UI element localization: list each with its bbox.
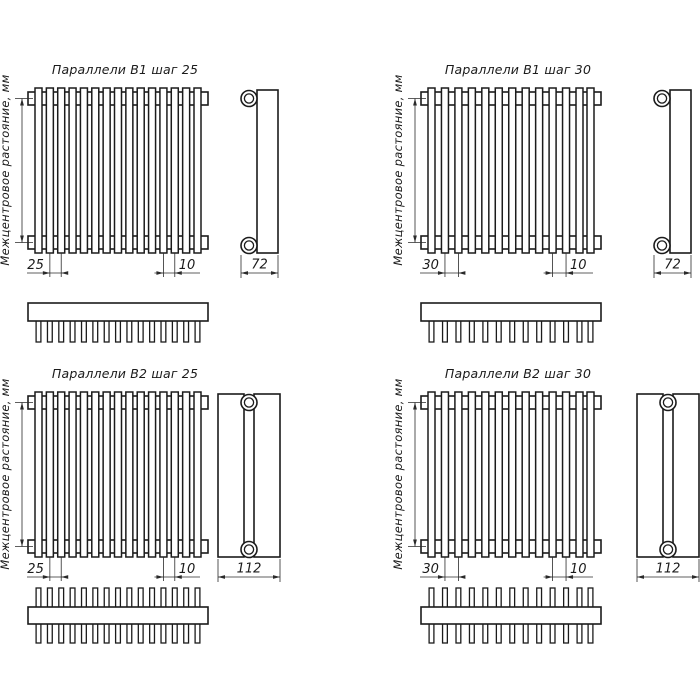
top-view — [28, 588, 208, 643]
comb-tooth-top — [184, 588, 189, 608]
tube — [183, 88, 190, 253]
side-body — [257, 90, 278, 253]
dim-arrow — [20, 99, 24, 106]
comb-tooth-bottom — [47, 623, 52, 643]
step-dimensions: 3010 — [420, 557, 593, 581]
tube — [587, 88, 594, 253]
radiator-technical-drawing: Параллели B1 шаг 25Межцентровое растояни… — [0, 0, 700, 700]
tube — [171, 88, 178, 253]
comb-tooth — [564, 320, 569, 342]
depth-dimension: 112 — [218, 559, 280, 582]
comb-tooth-bottom — [82, 623, 87, 643]
tube — [455, 392, 462, 557]
depth-dimension-label: 72 — [251, 258, 268, 273]
connection-port-inner — [244, 545, 253, 554]
tube — [549, 392, 556, 557]
end-gap-dimension-label: 10 — [179, 562, 196, 577]
comb-tooth-bottom — [564, 623, 569, 643]
tube — [522, 392, 529, 557]
comb-tooth — [82, 320, 87, 342]
comb-tooth — [116, 320, 121, 342]
dim-arrow — [273, 575, 280, 579]
comb-tooth — [483, 320, 488, 342]
tube — [509, 88, 516, 253]
tube — [103, 88, 110, 253]
comb-tooth-bottom — [150, 623, 155, 643]
dim-arrow — [546, 575, 553, 579]
tube — [35, 88, 42, 253]
tube — [171, 392, 178, 557]
comb-tooth — [550, 320, 555, 342]
comb-tooth-bottom — [93, 623, 98, 643]
comb-bar — [28, 607, 208, 624]
center-distance-label: Межцентровое растояние, мм — [0, 378, 12, 569]
dim-arrow — [20, 540, 24, 547]
tube — [80, 392, 87, 557]
comb-tooth-top — [469, 588, 474, 608]
comb-tooth-top — [195, 588, 200, 608]
side-body — [670, 90, 691, 253]
comb-tooth — [588, 320, 593, 342]
depth-dimension: 112 — [637, 559, 699, 582]
variant-b2-step30: Параллели B2 шаг 30Межцентровое растояни… — [391, 366, 699, 643]
comb-tooth — [47, 320, 52, 342]
variant-title: Параллели B1 шаг 25 — [52, 62, 198, 77]
comb-tooth-top — [127, 588, 132, 608]
dim-arrow — [241, 271, 248, 275]
tube — [468, 88, 475, 253]
tube — [35, 392, 42, 557]
tube — [58, 88, 65, 253]
depth-dimension: 72 — [654, 255, 691, 278]
end-gap-dimension-label: 10 — [179, 258, 196, 273]
connection-port-inner — [244, 398, 253, 407]
connection-port-inner — [663, 545, 672, 554]
comb-tooth-top — [483, 588, 488, 608]
tube — [149, 88, 156, 253]
comb-bar — [421, 303, 601, 321]
side-body-back — [673, 394, 699, 557]
comb-tooth — [172, 320, 177, 342]
comb-tooth-bottom — [469, 623, 474, 643]
comb-tooth-top — [82, 588, 87, 608]
tube — [495, 392, 502, 557]
comb-tooth-bottom — [138, 623, 143, 643]
tube — [522, 88, 529, 253]
front-view — [421, 392, 601, 557]
variant-b1-step30: Параллели B1 шаг 30Межцентровое растояни… — [391, 62, 691, 342]
dim-arrow — [413, 403, 417, 410]
comb-tooth-bottom — [116, 623, 121, 643]
dim-arrow — [458, 575, 465, 579]
variant-title: Параллели B2 шаг 30 — [445, 366, 591, 381]
tube — [468, 392, 475, 557]
dim-arrow — [438, 271, 445, 275]
comb-tooth — [70, 320, 75, 342]
comb-tooth-top — [510, 588, 515, 608]
dim-arrow — [20, 403, 24, 410]
dim-arrow — [458, 271, 465, 275]
tube — [563, 392, 570, 557]
connection-port-inner — [663, 398, 672, 407]
comb-tooth-bottom — [588, 623, 593, 643]
dim-arrow — [684, 271, 691, 275]
step-dimensions: 2510 — [27, 253, 200, 277]
dim-arrow — [413, 99, 417, 106]
dim-arrow — [43, 271, 50, 275]
comb-tooth-top — [443, 588, 448, 608]
comb-tooth — [523, 320, 528, 342]
tube — [115, 392, 122, 557]
tube — [563, 88, 570, 253]
front-view — [28, 392, 208, 557]
comb-tooth-bottom — [456, 623, 461, 643]
comb-tooth-top — [116, 588, 121, 608]
comb-tooth-bottom — [127, 623, 132, 643]
comb-tooth-top — [577, 588, 582, 608]
comb-tooth-bottom — [161, 623, 166, 643]
comb-tooth-bottom — [550, 623, 555, 643]
drawing-canvas: Параллели B1 шаг 25Межцентровое растояни… — [0, 0, 700, 700]
dim-arrow — [156, 575, 163, 579]
comb-tooth-top — [93, 588, 98, 608]
comb-tooth-top — [172, 588, 177, 608]
dim-arrow — [413, 236, 417, 243]
comb-tooth — [469, 320, 474, 342]
step-dimension-label: 25 — [27, 258, 44, 273]
comb-tooth — [195, 320, 200, 342]
side-view — [654, 90, 691, 254]
comb-tooth-top — [59, 588, 64, 608]
variant-b2-step25: Параллели B2 шаг 25Межцентровое растояни… — [0, 366, 280, 643]
tube — [441, 88, 448, 253]
tube — [183, 392, 190, 557]
comb-tooth-top — [161, 588, 166, 608]
comb-tooth — [456, 320, 461, 342]
tube — [69, 88, 76, 253]
connection-port-inner — [657, 94, 666, 103]
tube — [58, 392, 65, 557]
tube — [194, 392, 201, 557]
tube — [46, 392, 53, 557]
tube — [549, 88, 556, 253]
step-dimension-label: 25 — [27, 562, 44, 577]
comb-tooth-bottom — [36, 623, 41, 643]
tube — [428, 88, 435, 253]
dim-arrow — [156, 271, 163, 275]
comb-tooth-top — [537, 588, 542, 608]
front-view — [421, 88, 601, 253]
tube — [536, 88, 543, 253]
tube — [194, 88, 201, 253]
comb-tooth-bottom — [184, 623, 189, 643]
dim-arrow — [43, 575, 50, 579]
tube — [441, 392, 448, 557]
comb-tooth-top — [429, 588, 434, 608]
side-view — [637, 394, 699, 558]
dim-arrow — [20, 236, 24, 243]
tube — [46, 88, 53, 253]
comb-tooth-top — [550, 588, 555, 608]
step-dimension-label: 30 — [422, 258, 439, 273]
comb-tooth-top — [588, 588, 593, 608]
variant-title: Параллели B2 шаг 25 — [52, 366, 198, 381]
center-distance-label: Межцентровое растояние, мм — [391, 378, 405, 569]
comb-tooth-bottom — [429, 623, 434, 643]
dim-arrow — [654, 271, 661, 275]
comb-tooth — [496, 320, 501, 342]
comb-tooth-bottom — [70, 623, 75, 643]
comb-tooth — [93, 320, 98, 342]
tube — [115, 88, 122, 253]
tube — [103, 392, 110, 557]
comb-tooth-bottom — [483, 623, 488, 643]
depth-dimension-label: 72 — [664, 258, 681, 273]
step-dimension-label: 30 — [422, 562, 439, 577]
tube — [160, 392, 167, 557]
comb-tooth — [429, 320, 434, 342]
side-view — [241, 90, 278, 254]
tube — [69, 392, 76, 557]
depth-dimension-label: 112 — [237, 562, 262, 577]
comb-tooth — [104, 320, 109, 342]
center-distance-label: Межцентровое растояние, мм — [391, 74, 405, 265]
top-view — [28, 303, 208, 342]
step-dimensions: 2510 — [27, 557, 200, 581]
tube — [149, 392, 156, 557]
step-dimensions: 3010 — [420, 253, 593, 277]
comb-tooth-top — [496, 588, 501, 608]
tube — [126, 88, 133, 253]
tube — [482, 88, 489, 253]
top-view — [421, 303, 601, 342]
depth-dimension-label: 112 — [656, 562, 681, 577]
connection-port-inner — [244, 94, 253, 103]
tube — [92, 392, 99, 557]
tube — [137, 392, 144, 557]
comb-tooth-top — [138, 588, 143, 608]
comb-tooth-top — [104, 588, 109, 608]
top-view — [421, 588, 601, 643]
tube — [495, 88, 502, 253]
depth-dimension: 72 — [241, 255, 278, 278]
side-body-front — [637, 394, 663, 557]
comb-tooth-bottom — [195, 623, 200, 643]
comb-tooth-top — [456, 588, 461, 608]
variant-b1-step25: Параллели B1 шаг 25Межцентровое растояни… — [0, 62, 278, 342]
side-body-back — [254, 394, 280, 557]
end-gap-dimension-label: 10 — [570, 562, 587, 577]
tube — [576, 392, 583, 557]
dim-arrow — [637, 575, 644, 579]
tube — [428, 392, 435, 557]
tube — [509, 392, 516, 557]
dim-arrow — [61, 271, 68, 275]
comb-tooth-bottom — [172, 623, 177, 643]
comb-bar — [28, 303, 208, 321]
comb-tooth-top — [47, 588, 52, 608]
comb-tooth-bottom — [59, 623, 64, 643]
side-body-front — [218, 394, 244, 557]
front-view — [28, 88, 208, 253]
side-view — [218, 394, 280, 558]
end-gap-dimension-label: 10 — [570, 258, 587, 273]
comb-tooth-bottom — [537, 623, 542, 643]
tube — [92, 88, 99, 253]
comb-tooth-bottom — [523, 623, 528, 643]
connection-port-inner — [657, 241, 666, 250]
tube — [137, 88, 144, 253]
comb-tooth — [36, 320, 41, 342]
tube — [160, 88, 167, 253]
comb-tooth — [138, 320, 143, 342]
comb-tooth — [150, 320, 155, 342]
connection-port-inner — [244, 241, 253, 250]
comb-tooth — [127, 320, 132, 342]
tube — [455, 88, 462, 253]
tube — [126, 392, 133, 557]
comb-tooth-bottom — [510, 623, 515, 643]
comb-tooth — [510, 320, 515, 342]
variant-title: Параллели B1 шаг 30 — [445, 62, 591, 77]
comb-tooth-top — [36, 588, 41, 608]
comb-tooth — [443, 320, 448, 342]
center-distance-label: Межцентровое растояние, мм — [0, 74, 12, 265]
tube — [482, 392, 489, 557]
comb-bar — [421, 607, 601, 624]
comb-tooth — [59, 320, 64, 342]
tube — [80, 88, 87, 253]
comb-tooth-top — [150, 588, 155, 608]
comb-tooth-top — [70, 588, 75, 608]
comb-tooth-bottom — [577, 623, 582, 643]
comb-tooth-bottom — [443, 623, 448, 643]
dim-arrow — [218, 575, 225, 579]
tube — [587, 392, 594, 557]
comb-tooth — [577, 320, 582, 342]
comb-tooth-top — [523, 588, 528, 608]
comb-tooth — [161, 320, 166, 342]
tube — [536, 392, 543, 557]
comb-tooth-top — [564, 588, 569, 608]
dim-arrow — [61, 575, 68, 579]
tube — [576, 88, 583, 253]
comb-tooth — [537, 320, 542, 342]
dim-arrow — [692, 575, 699, 579]
dim-arrow — [438, 575, 445, 579]
comb-tooth — [184, 320, 189, 342]
comb-tooth-bottom — [496, 623, 501, 643]
comb-tooth-bottom — [104, 623, 109, 643]
dim-arrow — [546, 271, 553, 275]
dim-arrow — [271, 271, 278, 275]
dim-arrow — [413, 540, 417, 547]
